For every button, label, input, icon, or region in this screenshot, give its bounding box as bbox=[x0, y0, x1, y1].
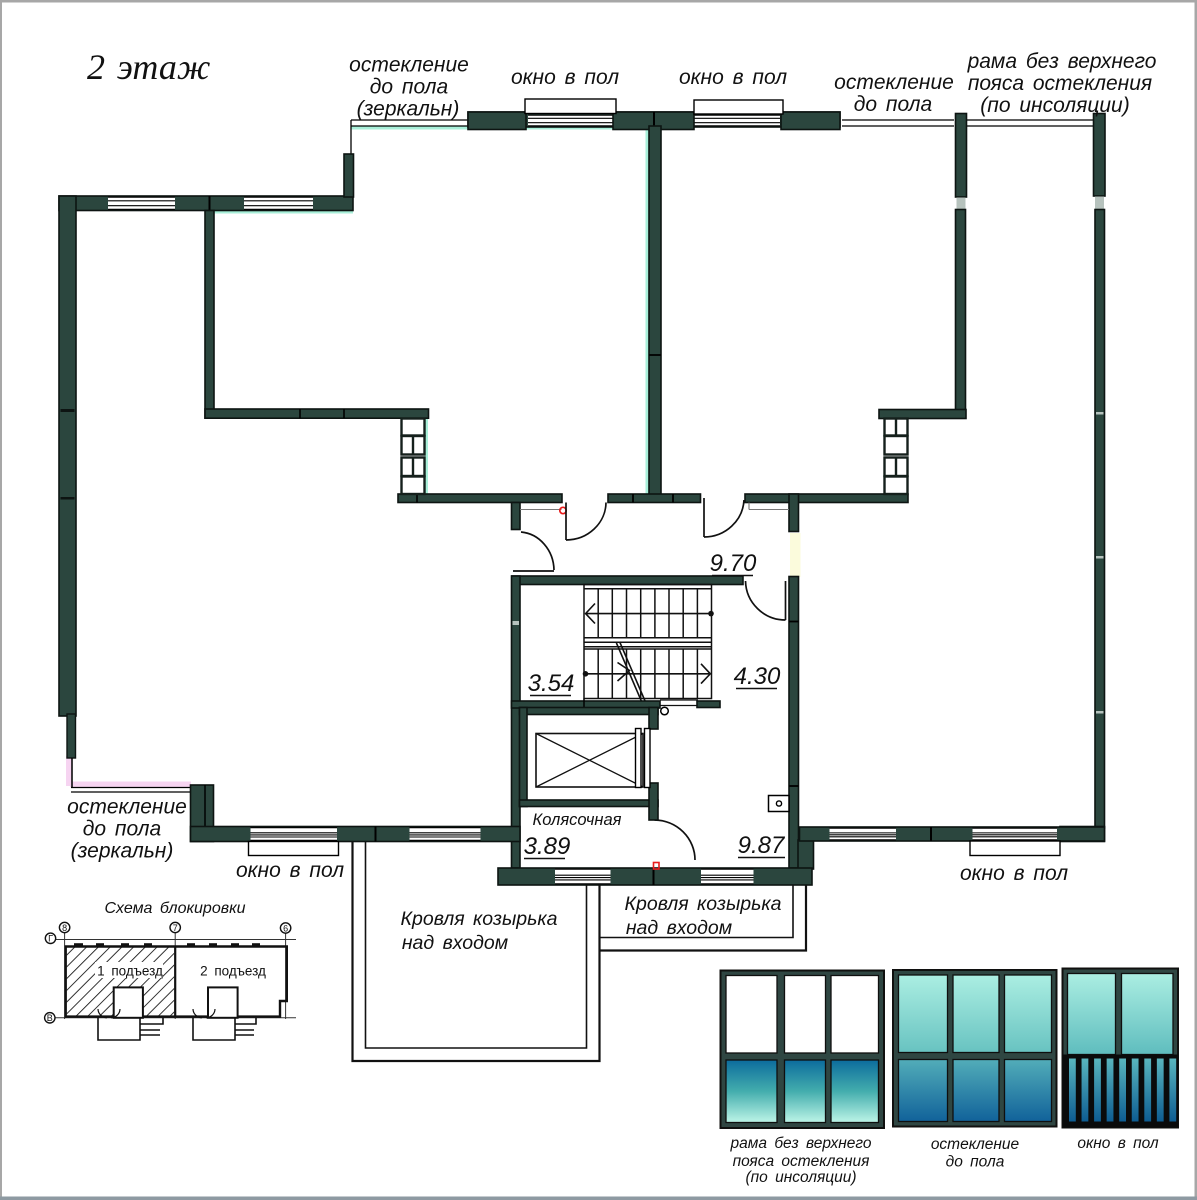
svg-text:(зеркальн): (зеркальн) bbox=[71, 840, 174, 863]
svg-text:9.70: 9.70 bbox=[710, 550, 757, 577]
svg-text:4.30: 4.30 bbox=[734, 663, 781, 690]
svg-text:(по инсоляции): (по инсоляции) bbox=[980, 94, 1129, 117]
svg-text:рама без верхнего: рама без верхнего bbox=[967, 50, 1157, 73]
svg-text:1 подъезд: 1 подъезд bbox=[97, 964, 163, 979]
svg-text:Кровля козырька: Кровля козырька bbox=[625, 893, 782, 915]
svg-text:9.87: 9.87 bbox=[738, 832, 786, 859]
svg-text:В: В bbox=[47, 1013, 53, 1023]
svg-text:8: 8 bbox=[62, 923, 67, 933]
svg-text:над входом: над входом bbox=[626, 917, 732, 939]
svg-text:до пола: до пола bbox=[83, 818, 161, 841]
svg-text:остекление: остекление bbox=[67, 796, 187, 819]
svg-text:7: 7 bbox=[173, 923, 178, 933]
svg-text:окно в пол: окно в пол bbox=[511, 66, 619, 89]
svg-text:6: 6 bbox=[283, 923, 288, 933]
svg-text:пояса остекления: пояса остекления bbox=[968, 72, 1152, 95]
svg-text:2 этаж: 2 этаж bbox=[87, 47, 210, 87]
svg-text:остекление: остекление bbox=[931, 1136, 1020, 1153]
svg-text:до пола: до пола bbox=[370, 76, 448, 99]
svg-text:Кровля козырька: Кровля козырька bbox=[401, 908, 558, 930]
svg-text:Г: Г bbox=[48, 934, 53, 944]
svg-text:рама без верхнего: рама без верхнего bbox=[730, 1135, 872, 1152]
svg-text:(по инсоляции): (по инсоляции) bbox=[745, 1169, 856, 1186]
svg-text:остекление: остекление bbox=[834, 71, 954, 94]
svg-text:окно в пол: окно в пол bbox=[1077, 1135, 1159, 1152]
svg-text:над входом: над входом bbox=[402, 932, 508, 954]
svg-text:Колясочная: Колясочная bbox=[533, 811, 622, 829]
svg-text:до пола: до пола bbox=[854, 93, 932, 116]
svg-text:3.54: 3.54 bbox=[528, 670, 575, 697]
svg-text:окно в пол: окно в пол bbox=[960, 862, 1068, 885]
svg-text:2 подъезд: 2 подъезд bbox=[200, 964, 266, 979]
svg-text:пояса остекления: пояса остекления bbox=[733, 1153, 870, 1170]
svg-text:окно в пол: окно в пол bbox=[236, 859, 344, 882]
svg-text:до пола: до пола bbox=[946, 1154, 1005, 1171]
svg-text:(зеркальн): (зеркальн) bbox=[357, 98, 460, 121]
svg-text:остекление: остекление bbox=[349, 54, 469, 77]
svg-text:Схема блокировки: Схема блокировки bbox=[104, 900, 245, 917]
svg-text:3.89: 3.89 bbox=[524, 833, 571, 860]
svg-text:окно в пол: окно в пол bbox=[679, 66, 787, 89]
